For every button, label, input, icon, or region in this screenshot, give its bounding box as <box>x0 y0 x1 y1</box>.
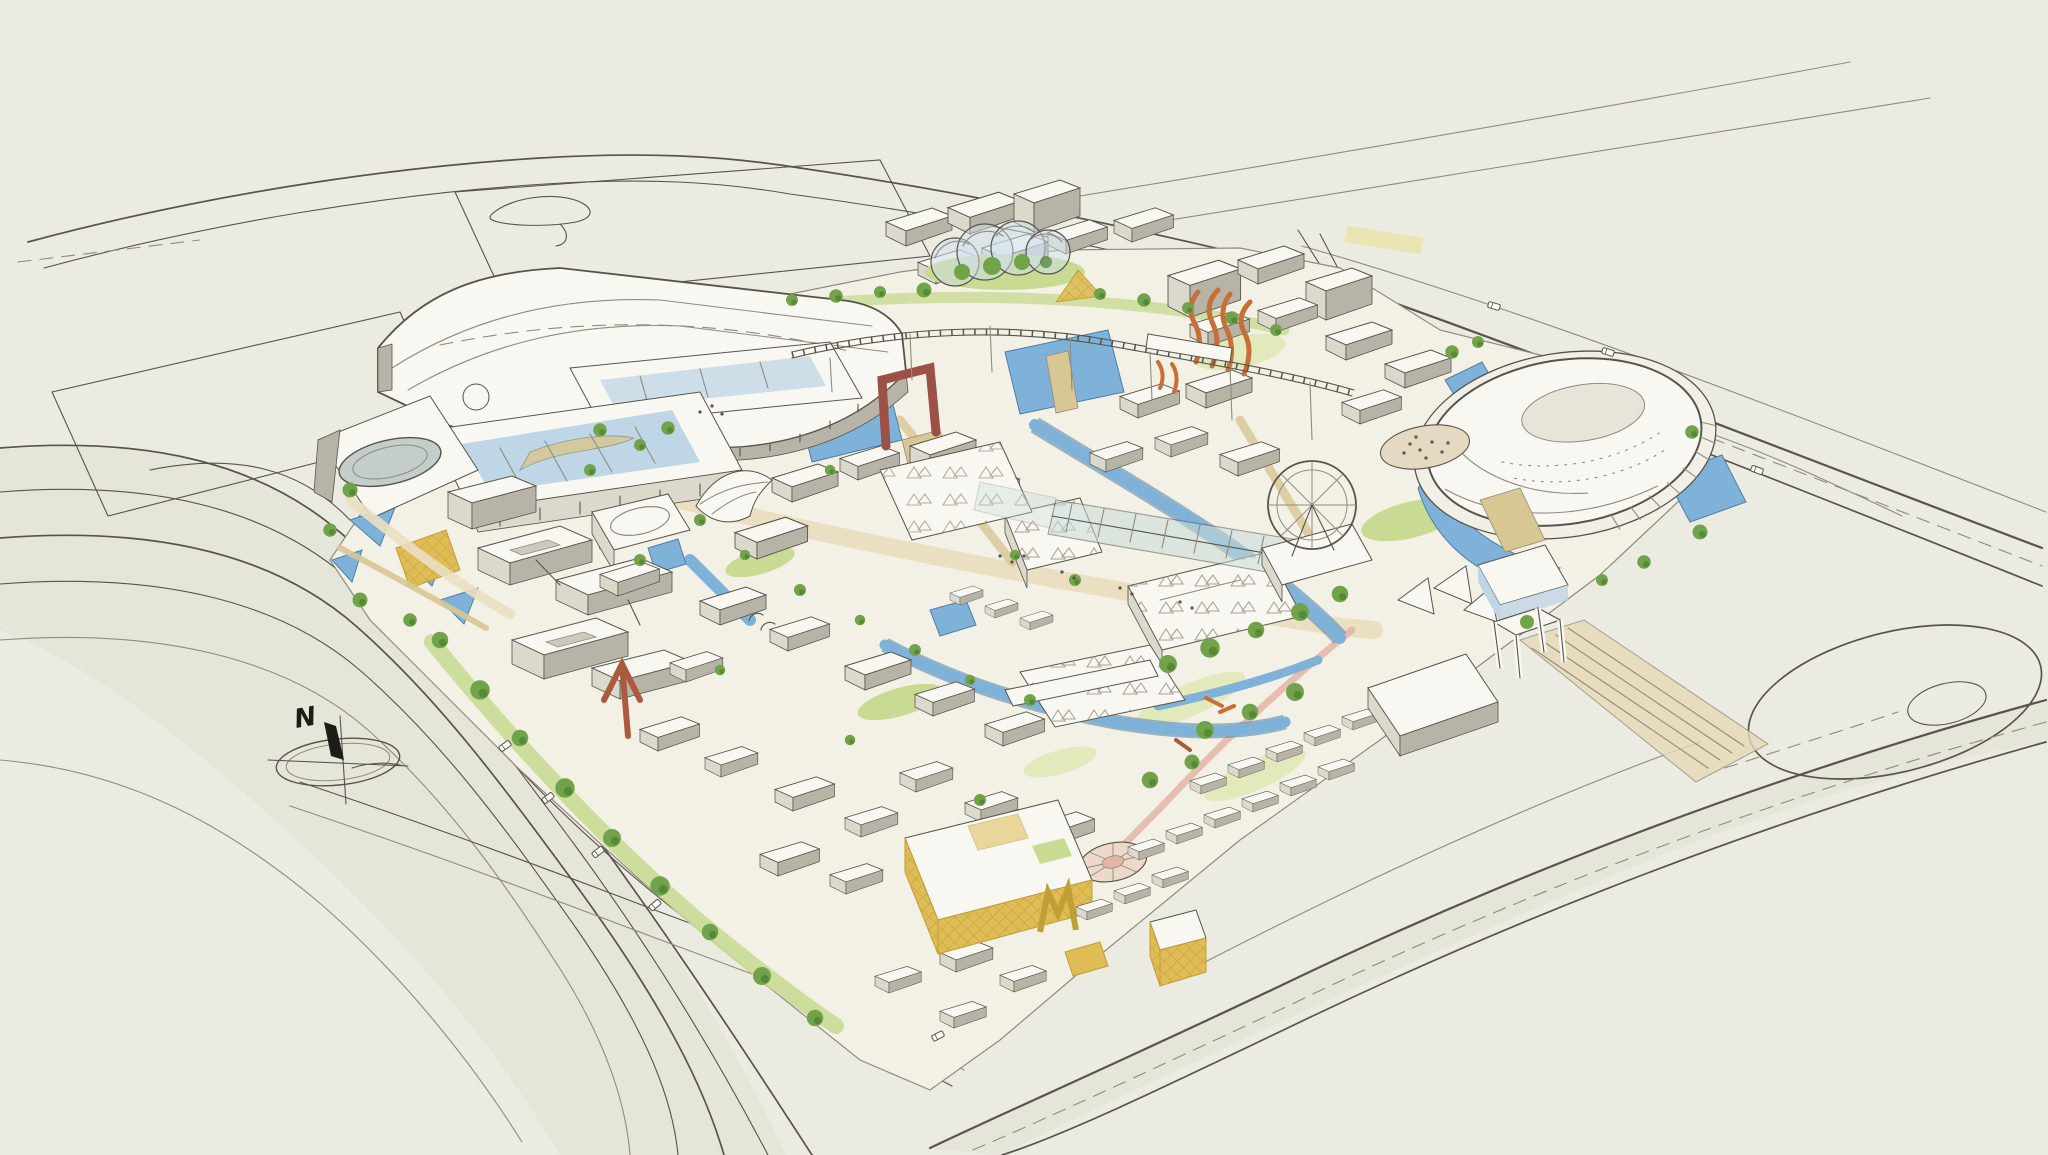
sketch-canvas: N <box>0 0 2048 1155</box>
round-pod-building <box>463 384 489 410</box>
masterplan-sketch: N <box>0 0 2048 1155</box>
